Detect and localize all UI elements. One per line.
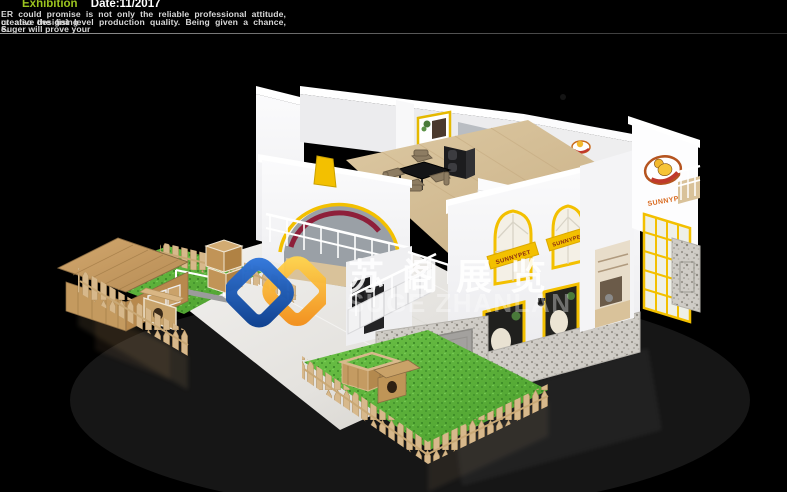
booth-render: SUNNYPET SUNNYPET bbox=[0, 0, 787, 492]
stone-pillar bbox=[672, 238, 700, 312]
header: Exhibition Date:11/2017 ER could promise… bbox=[0, 0, 787, 34]
watermark-latin: SUGE ZHANLAN bbox=[347, 288, 572, 319]
keystone bbox=[314, 156, 336, 187]
suge-zhanlan-logo-icon bbox=[226, 244, 326, 344]
header-divider bbox=[0, 33, 787, 34]
interior-opening bbox=[595, 240, 630, 328]
page: SUNNYPET SUNNYPET bbox=[0, 0, 787, 492]
